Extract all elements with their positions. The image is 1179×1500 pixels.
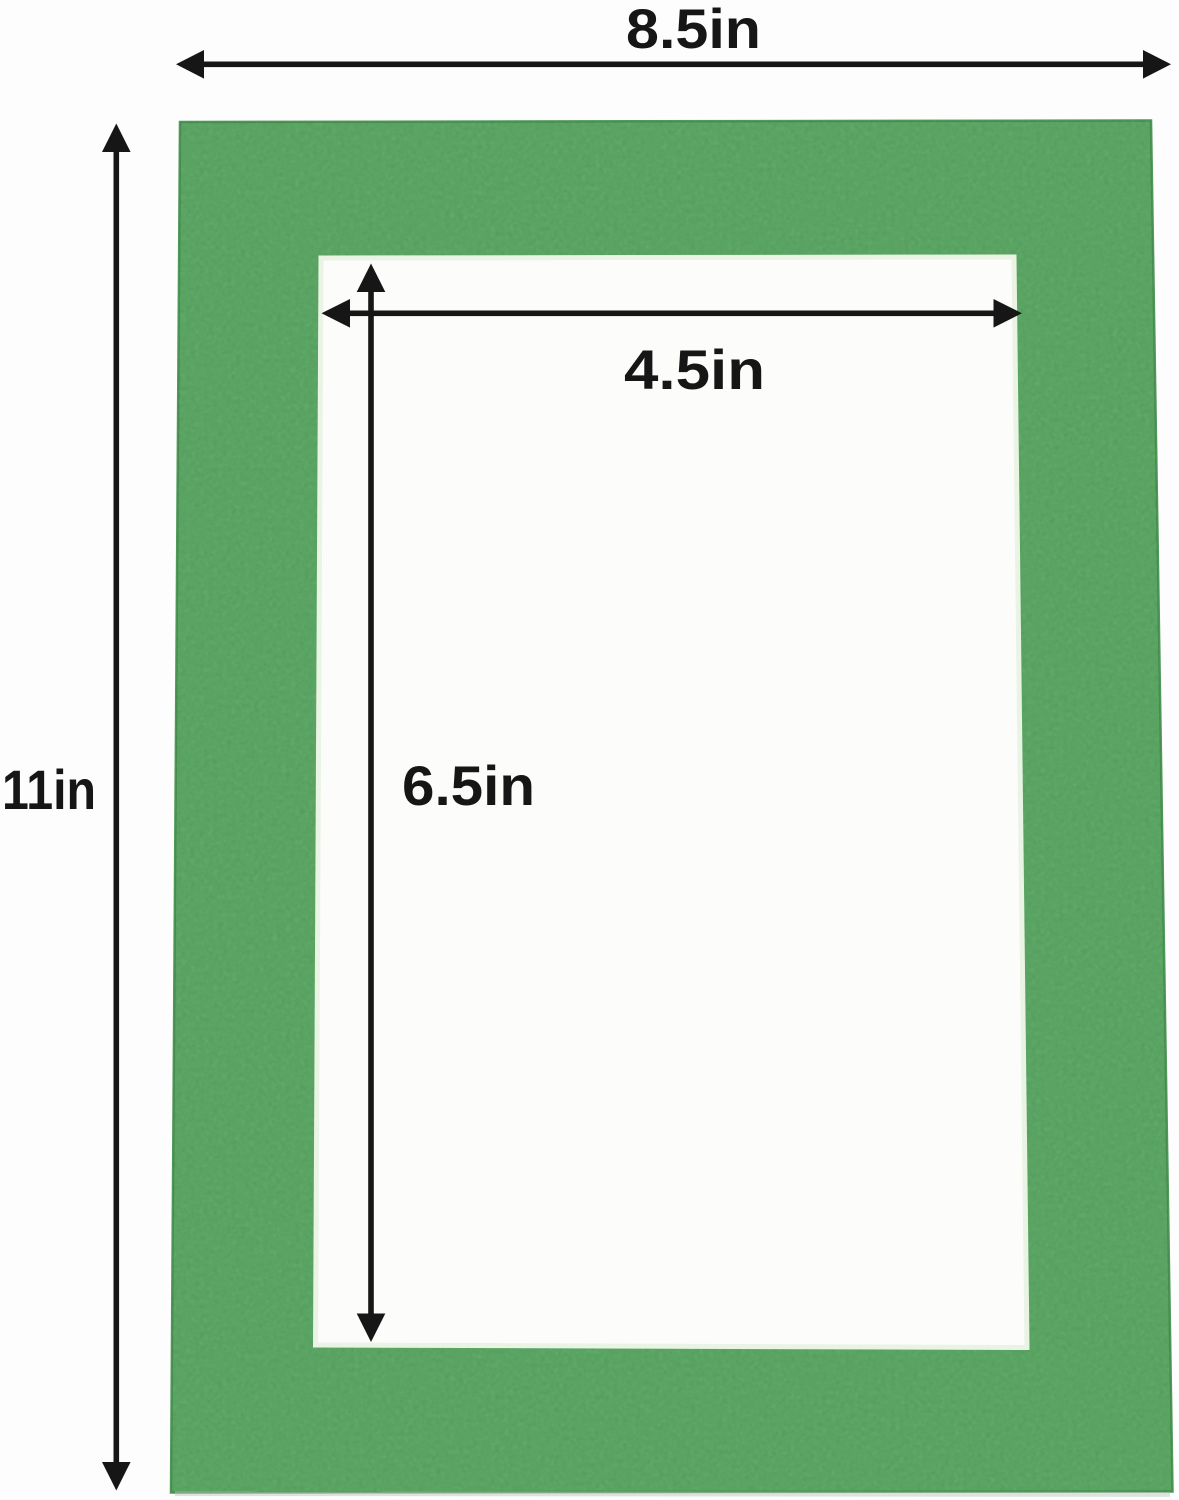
svg-text:4.5in: 4.5in	[624, 338, 765, 401]
svg-text:6.5in: 6.5in	[402, 754, 535, 817]
svg-text:8.5in: 8.5in	[626, 0, 761, 60]
svg-text:11in: 11in	[2, 758, 96, 821]
